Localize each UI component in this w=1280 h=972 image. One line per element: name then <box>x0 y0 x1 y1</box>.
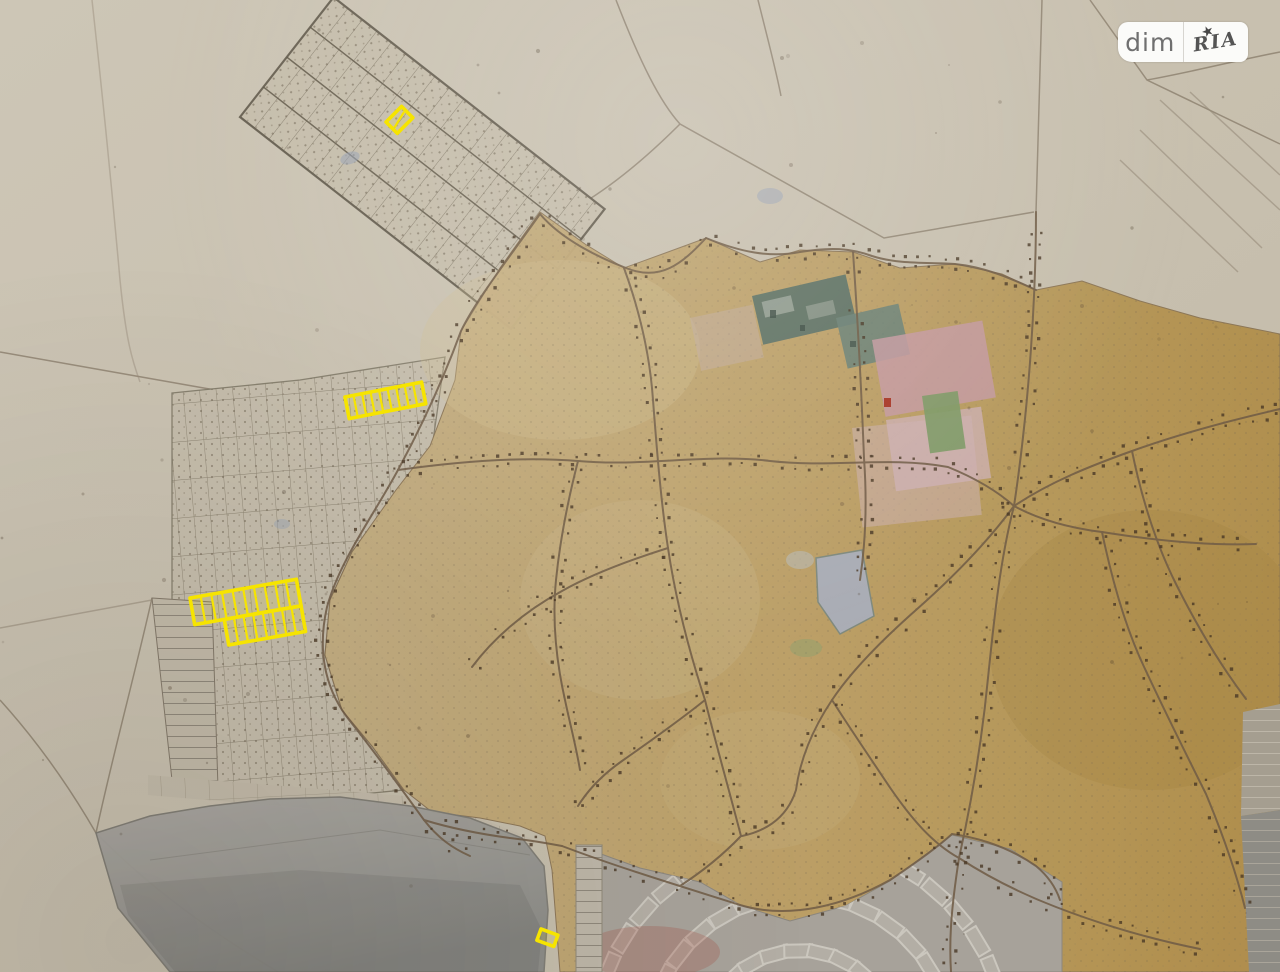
dim-ria-watermark: dim ★RIA <box>1118 22 1248 62</box>
logo-dim-cell: dim <box>1118 22 1183 62</box>
logo-ria-text: ★RIA <box>1192 28 1240 57</box>
map-photo: dim ★RIA <box>0 0 1280 972</box>
corner-shadow <box>0 0 1280 972</box>
cadastral-map <box>0 0 1280 972</box>
logo-ria-cell: ★RIA <box>1184 22 1249 62</box>
logo-dim-text: dim <box>1125 28 1175 57</box>
